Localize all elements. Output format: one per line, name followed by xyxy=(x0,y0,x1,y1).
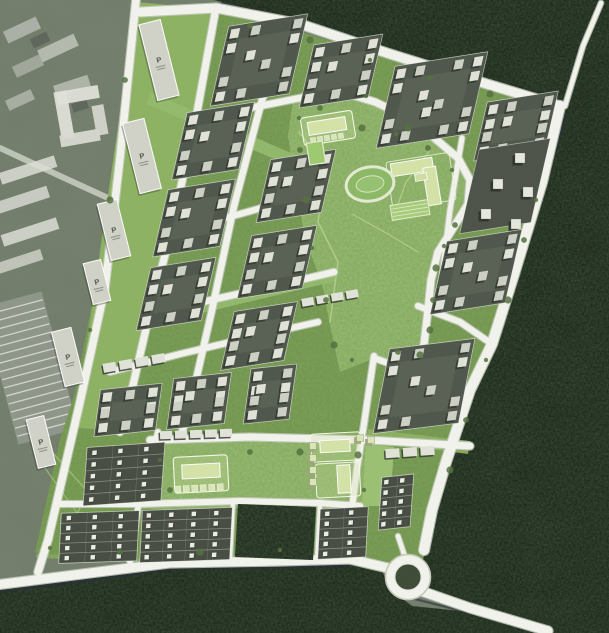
photo-grain-overlay xyxy=(0,0,609,633)
masterplan-svg: PPPPPP xyxy=(0,0,609,633)
photo-grain-overlay xyxy=(0,0,609,633)
map-layers: PPPPPP xyxy=(0,0,609,633)
masterplan-map: PPPPPP xyxy=(0,0,609,633)
